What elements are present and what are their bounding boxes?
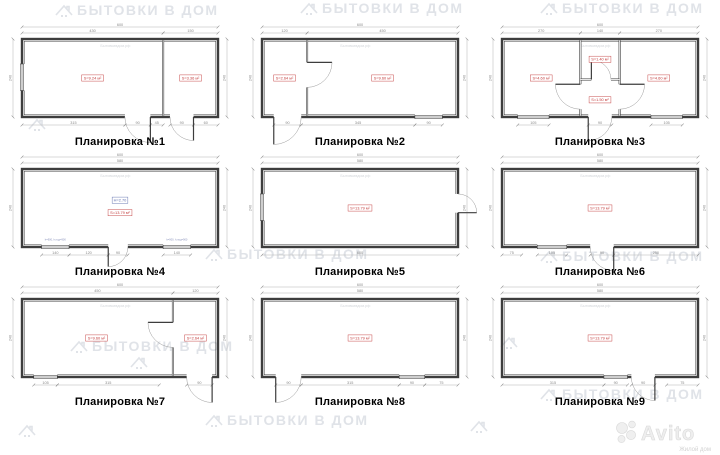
svg-text:Бытовкивдом.рф: Бытовкивдом.рф <box>580 44 610 48</box>
floorplan-8: Бытовкивдом.рф600580903159075240240S=13.… <box>240 280 480 410</box>
svg-text:90: 90 <box>116 251 120 255</box>
svg-text:S=2.64 м²: S=2.64 м² <box>187 335 205 340</box>
svg-text:S=1.50 м²: S=1.50 м² <box>591 97 609 102</box>
svg-text:240: 240 <box>463 75 467 81</box>
svg-text:105: 105 <box>530 121 536 125</box>
svg-text:H=2.70: H=2.70 <box>114 198 127 203</box>
svg-text:600: 600 <box>597 153 603 157</box>
svg-text:90: 90 <box>426 121 430 125</box>
floorplan-4: Бытовкивдом.рф60058014012090140240240S=1… <box>0 150 240 280</box>
svg-text:430: 430 <box>89 29 95 33</box>
svg-text:580: 580 <box>597 159 603 163</box>
svg-text:120: 120 <box>192 289 198 293</box>
svg-text:240: 240 <box>489 75 493 81</box>
svg-text:240: 240 <box>223 75 227 81</box>
svg-text:600: 600 <box>357 251 363 255</box>
floorplan-drawing-6: Бытовкивдом.рф6005807510590250240240S=13… <box>480 151 720 265</box>
avito-watermark: Avito Жилой дом <box>614 419 714 453</box>
svg-text:600: 600 <box>597 283 603 287</box>
svg-text:315: 315 <box>550 381 556 385</box>
svg-text:270: 270 <box>656 29 662 33</box>
floorplan-2: Бытовкивдом.рф6001204509034590240240S=2.… <box>240 0 480 150</box>
svg-text:240: 240 <box>9 205 13 211</box>
svg-text:S=13.79 м²: S=13.79 м² <box>590 205 610 210</box>
svg-text:315: 315 <box>70 121 76 125</box>
svg-text:105: 105 <box>42 381 48 385</box>
svg-text:S=4.60 м²: S=4.60 м² <box>532 75 550 80</box>
svg-text:90: 90 <box>197 381 201 385</box>
svg-text:580: 580 <box>117 159 123 163</box>
svg-text:240: 240 <box>223 205 227 211</box>
floorplan-7: Бытовкивдом.рф60045012010531590240240S=9… <box>0 280 240 410</box>
avito-logo-icon: Avito <box>614 419 714 446</box>
svg-text:240: 240 <box>463 335 467 341</box>
svg-text:90: 90 <box>285 121 289 125</box>
svg-text:S=4.60 м²: S=4.60 м² <box>650 75 668 80</box>
svg-text:S=13.79 м²: S=13.79 м² <box>110 210 130 215</box>
svg-text:140: 140 <box>52 251 58 255</box>
floorplan-3: Бытовкивдом.рф60027014027010590105240240… <box>480 0 720 150</box>
floorplan-drawing-1: Бытовкивдом.рф60043015031590459060240240… <box>0 21 240 135</box>
svg-text:90: 90 <box>180 121 184 125</box>
svg-text:Бытовкивдом.рф: Бытовкивдом.рф <box>340 174 370 178</box>
svg-text:240: 240 <box>463 205 467 211</box>
svg-text:240: 240 <box>223 335 227 341</box>
svg-text:Бытовкивдом.рф: Бытовкивдом.рф <box>580 174 610 178</box>
svg-text:240: 240 <box>9 335 13 341</box>
svg-text:90: 90 <box>598 121 602 125</box>
svg-text:580: 580 <box>357 289 363 293</box>
svg-text:105: 105 <box>663 121 669 125</box>
avito-logo-text: Avito <box>641 423 695 445</box>
svg-text:S=13.79 м²: S=13.79 м² <box>350 205 370 210</box>
svg-text:105: 105 <box>549 251 555 255</box>
svg-text:90: 90 <box>600 251 604 255</box>
svg-text:450: 450 <box>94 289 100 293</box>
svg-text:240: 240 <box>249 205 253 211</box>
svg-text:S=9.24 м²: S=9.24 м² <box>84 75 102 80</box>
plan-title-4: Планировка №4 <box>75 266 165 278</box>
svg-text:240: 240 <box>489 335 493 341</box>
plan-title-7: Планировка №7 <box>75 396 165 408</box>
floorplan-drawing-9: Бытовкивдом.рф600580315909075240240S=13.… <box>480 281 720 395</box>
svg-text:75: 75 <box>439 381 443 385</box>
floorplans-image: БЫТОВКИ В ДОМБЫТОВКИ В ДОМБЫТОВКИ В ДОМБ… <box>0 0 720 455</box>
floorplan-5: Бытовкивдом.рф600580600240240S=13.79 м² … <box>240 150 480 280</box>
svg-text:h=900, h.под=900: h=900, h.под=900 <box>45 237 67 241</box>
svg-text:250: 250 <box>653 251 659 255</box>
svg-text:S=13.79 м²: S=13.79 м² <box>350 335 370 340</box>
svg-text:90: 90 <box>286 381 290 385</box>
svg-text:600: 600 <box>357 283 363 287</box>
svg-text:90: 90 <box>136 121 140 125</box>
svg-text:600: 600 <box>117 153 123 157</box>
svg-text:Бытовкивдом.рф: Бытовкивдом.рф <box>580 304 610 308</box>
svg-text:240: 240 <box>9 75 13 81</box>
plan-title-5: Планировка №5 <box>315 266 405 278</box>
svg-text:90: 90 <box>641 381 645 385</box>
floorplan-drawing-5: Бытовкивдом.рф600580600240240S=13.79 м² <box>240 151 480 265</box>
svg-text:240: 240 <box>703 335 707 341</box>
floorplan-6: Бытовкивдом.рф6005807510590250240240S=13… <box>480 150 720 280</box>
svg-text:45: 45 <box>155 121 159 125</box>
svg-text:120: 120 <box>281 29 287 33</box>
avito-subtext: Жилой дом <box>614 447 714 453</box>
svg-text:S=9.60 м²: S=9.60 м² <box>374 75 392 80</box>
svg-text:140: 140 <box>597 29 603 33</box>
plan-title-1: Планировка №1 <box>75 136 165 148</box>
floorplan-1: Бытовкивдом.рф60043015031590459060240240… <box>0 0 240 150</box>
house-roof-icon <box>18 424 36 437</box>
svg-text:90: 90 <box>410 381 414 385</box>
floorplan-drawing-8: Бытовкивдом.рф600580903159075240240S=13.… <box>240 281 480 395</box>
svg-text:450: 450 <box>379 29 385 33</box>
svg-text:240: 240 <box>249 335 253 341</box>
svg-text:240: 240 <box>703 205 707 211</box>
svg-text:120: 120 <box>85 251 91 255</box>
svg-text:240: 240 <box>703 75 707 81</box>
floorplan-drawing-7: Бытовкивдом.рф60045012010531590240240S=9… <box>0 281 240 395</box>
plan-title-8: Планировка №8 <box>315 396 405 408</box>
svg-text:S=13.79 м²: S=13.79 м² <box>590 335 610 340</box>
floorplan-drawing-3: Бытовкивдом.рф60027014027010590105240240… <box>480 21 720 135</box>
svg-text:580: 580 <box>597 289 603 293</box>
svg-text:600: 600 <box>357 23 363 27</box>
floorplan-9: Бытовкивдом.рф600580315909075240240S=13.… <box>480 280 720 410</box>
svg-text:240: 240 <box>489 205 493 211</box>
svg-text:S=9.60 м²: S=9.60 м² <box>88 335 106 340</box>
svg-text:140: 140 <box>174 251 180 255</box>
svg-text:90: 90 <box>614 381 618 385</box>
plan-title-6: Планировка №6 <box>555 266 645 278</box>
svg-text:Бытовкивдом.рф: Бытовкивдом.рф <box>100 304 130 308</box>
svg-text:270: 270 <box>538 29 544 33</box>
svg-text:240: 240 <box>249 75 253 81</box>
svg-text:Бытовкивдом.рф: Бытовкивдом.рф <box>340 44 370 48</box>
svg-text:315: 315 <box>347 381 353 385</box>
svg-text:Бытовкивдом.рф: Бытовкивдом.рф <box>100 44 130 48</box>
floorplan-drawing-2: Бытовкивдом.рф6001204509034590240240S=2.… <box>240 21 480 135</box>
svg-text:S=2.64 м²: S=2.64 м² <box>276 75 294 80</box>
svg-text:600: 600 <box>597 23 603 27</box>
svg-text:600: 600 <box>357 153 363 157</box>
svg-text:75: 75 <box>680 381 684 385</box>
floorplan-drawing-4: Бытовкивдом.рф60058014012090140240240S=1… <box>0 151 240 265</box>
plan-title-2: Планировка №2 <box>315 136 405 148</box>
svg-text:Бытовкивдом.рф: Бытовкивдом.рф <box>340 304 370 308</box>
brand-watermark: БЫТОВКИ В ДОМ <box>205 412 369 428</box>
svg-text:315: 315 <box>105 381 111 385</box>
plan-title-3: Планировка №3 <box>555 136 645 148</box>
svg-text:S=1.40 м²: S=1.40 м² <box>591 57 609 62</box>
svg-text:345: 345 <box>355 121 361 125</box>
plan-title-9: Планировка №9 <box>555 396 645 408</box>
svg-text:h=900, h.под=900: h=900, h.под=900 <box>166 237 188 241</box>
house-roof-icon <box>470 420 488 433</box>
svg-text:S=3.36 м²: S=3.36 м² <box>182 75 200 80</box>
svg-text:60: 60 <box>204 121 208 125</box>
svg-text:150: 150 <box>187 29 193 33</box>
svg-text:600: 600 <box>117 283 123 287</box>
svg-text:600: 600 <box>117 23 123 27</box>
floorplan-grid: Бытовкивдом.рф60043015031590459060240240… <box>0 0 720 410</box>
svg-text:Бытовкивдом.рф: Бытовкивдом.рф <box>100 174 130 178</box>
svg-text:75: 75 <box>510 251 514 255</box>
svg-text:580: 580 <box>357 159 363 163</box>
